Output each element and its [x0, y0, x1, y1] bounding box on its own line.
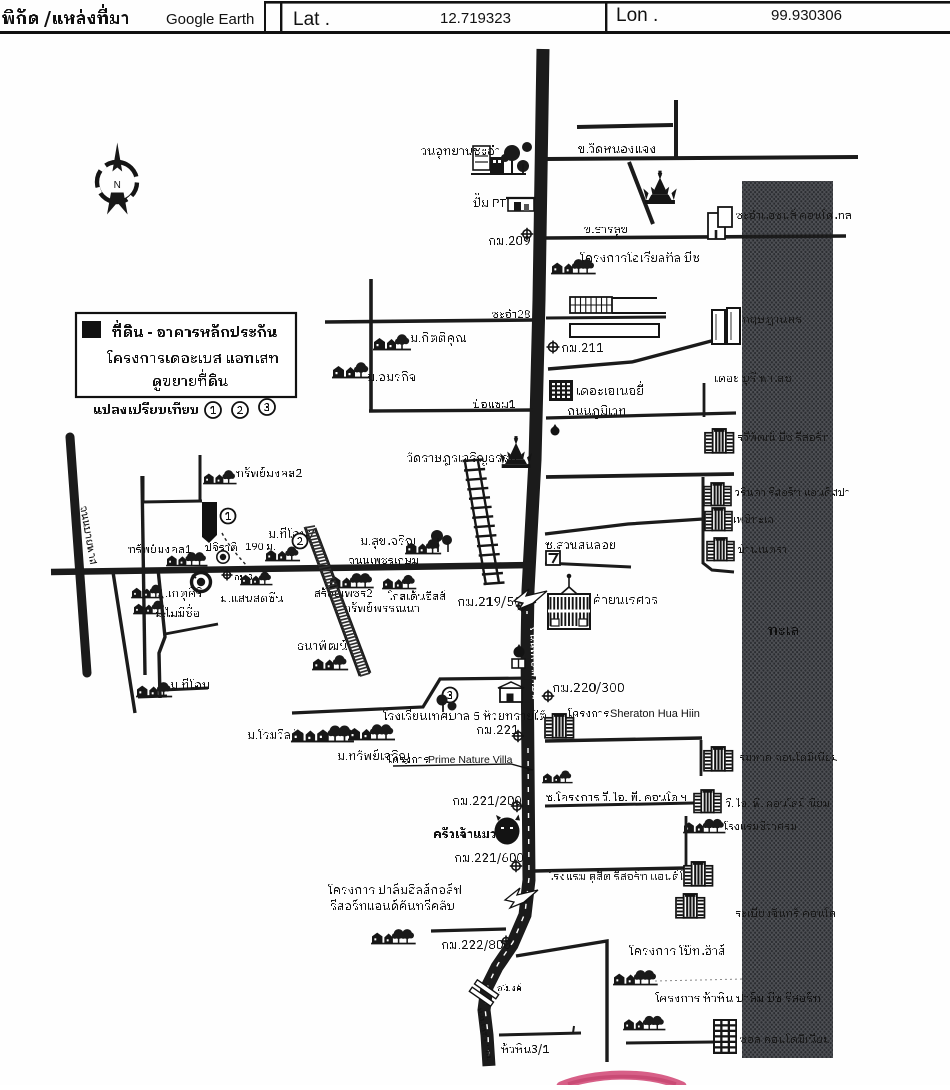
svg-text:Sheraton Hua Hiin: Sheraton Hua Hiin [610, 708, 700, 720]
svg-text:N: N [114, 180, 121, 191]
svg-text:Lat .: Lat . [293, 9, 330, 30]
svg-text:Lon .: Lon . [616, 5, 658, 26]
svg-text:12.719323: 12.719323 [440, 10, 511, 27]
svg-text:99.930306: 99.930306 [771, 7, 842, 24]
svg-text:Google Earth: Google Earth [166, 11, 254, 28]
